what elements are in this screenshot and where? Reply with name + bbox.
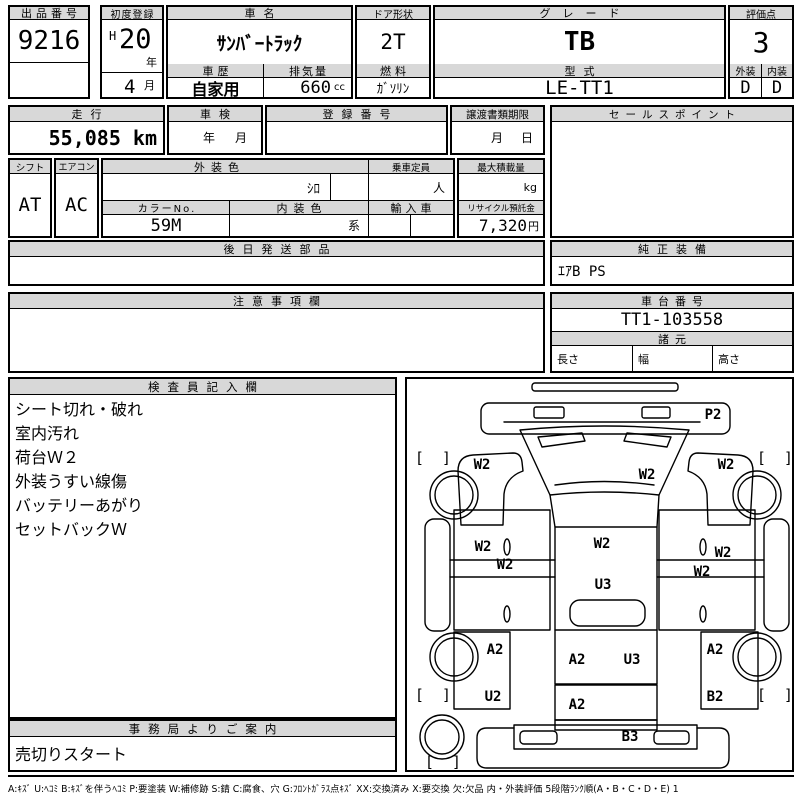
sales-point-box: セールスポイント (550, 105, 794, 238)
damage-mark: W2 (474, 457, 491, 473)
damage-mark: W2 (475, 539, 492, 555)
specs-label: 諸元 (552, 332, 792, 346)
fuel-label: 燃料 (357, 64, 429, 78)
fuel-value: ｶﾞｿﾘﾝ (357, 78, 429, 97)
first-reg-month: 4 (124, 76, 135, 98)
registration-no-label: 登録番号 (267, 107, 446, 122)
inspection-month-unit: 月 (235, 129, 247, 146)
recycle-fee-value: 7,320 (479, 216, 527, 235)
vehicle-diagram-box: [][][][][] P2W2W2W2W2W2W2W2W2U3A2A2U3A2U… (405, 377, 794, 772)
oem-equipment-label: 純正装備 (552, 242, 792, 257)
damage-mark: B2 (707, 689, 724, 705)
recycle-fee-unit: 円 (528, 218, 539, 234)
first-reg-year-cell: H 20 年 (102, 20, 162, 72)
auction-no-box: 出品番号 9216 (8, 5, 90, 99)
damage-marks: P2W2W2W2W2W2W2W2W2U3A2A2U3A2U2A2B2B3 (474, 407, 735, 745)
first-reg-label: 初度登録 (102, 7, 162, 20)
door-shape-box: ドア形状 2T 燃料 ｶﾞｿﾘﾝ (355, 5, 431, 99)
max-load-unit: kg (524, 181, 537, 194)
history-value: 自家用 (168, 78, 263, 97)
interior-color-label: 内装色 (229, 201, 368, 215)
transfer-docs-box: 譲渡書類期限 月 日 (450, 105, 545, 155)
transfer-docs-label: 譲渡書類期限 (452, 107, 543, 122)
first-registration-box: 初度登録 H 20 年 4 月 (100, 5, 164, 99)
recycle-fee-label: リサイクル預託金 (459, 201, 543, 215)
inspector-notes-list: シート切れ・破れ 室内汚れ 荷台Ｗ２ 外装うすい線傷 バッテリーあがり セットバ… (15, 398, 393, 715)
aircon-value: AC (56, 174, 97, 236)
caution-box: 注意事項欄 (8, 292, 545, 373)
corner-bracket: ] (785, 449, 791, 467)
grade-box: グレード TB 型式 LE-TT1 (433, 5, 726, 99)
aircon-box: エアコン AC (54, 158, 99, 238)
caution-empty (10, 309, 543, 371)
sales-point-label: セールスポイント (552, 107, 792, 122)
vehicle-diagram: [][][][][] P2W2W2W2W2W2W2W2W2U3A2A2U3A2U… (407, 379, 792, 770)
inspector-notes-label: 検査員記入欄 (10, 379, 395, 395)
chassis-no-value: TT1-103558 (552, 309, 792, 332)
office-notice-box: 事務局よりご案内 売切りスタート (8, 719, 397, 772)
inspection-year-unit: 年 (203, 129, 215, 146)
import-cell-2 (410, 215, 453, 236)
car-name-value: ｻﾝﾊﾞｰﾄﾗｯｸ (168, 20, 351, 64)
later-parts-label: 後日発送部品 (10, 242, 543, 257)
door-shape-label: ドア形状 (357, 7, 429, 20)
import-cell-1 (368, 215, 410, 236)
max-load-label: 最大積載量 (459, 160, 543, 174)
model-code-value: LE-TT1 (435, 78, 724, 97)
truck-outline (420, 383, 789, 768)
mileage-label: 走行 (10, 107, 163, 122)
transfer-day-unit: 日 (521, 129, 533, 146)
shift-value: AT (10, 174, 50, 236)
corner-bracket: [ (427, 753, 433, 770)
sales-point-empty (552, 122, 792, 236)
damage-mark: W2 (694, 564, 711, 580)
mileage-box: 走行 55,085 km (8, 105, 165, 155)
color-no-label: カラーNo. (103, 201, 229, 215)
inspector-note: セットバックＷ (15, 518, 393, 542)
oem-equipment-value: ｴｱB PS (552, 257, 792, 284)
damage-mark: B3 (622, 729, 639, 745)
auction-no-label: 出品番号 (10, 7, 88, 20)
corner-bracket: ] (785, 686, 791, 704)
damage-mark: U3 (595, 577, 612, 593)
recycle-fee-cell: 7,320 円 (459, 215, 543, 236)
displacement-unit: cc (334, 82, 345, 93)
transfer-month-unit: 月 (491, 129, 503, 146)
damage-mark: W2 (497, 557, 514, 573)
damage-mark: A2 (707, 642, 724, 658)
grade-label: グレード (435, 7, 724, 20)
caution-label: 注意事項欄 (10, 294, 543, 309)
damage-mark: W2 (715, 545, 732, 561)
legend-text: A:ｷｽﾞ U:ﾍｺﾐ B:ｷｽﾞを伴うﾍｺﾐ P:要塗装 W:補修跡 S:錆 … (8, 775, 794, 798)
spec-length-label: 長さ (552, 346, 632, 371)
interior-grade-label: 内装 (761, 64, 792, 78)
color-capacity-box: 外装色 乗車定員 ｼﾛ 人 カラーNo. 内装色 輸入車 59M 系 (101, 158, 455, 238)
inspection-box: 車検 年 月 (167, 105, 263, 155)
damage-mark: W2 (639, 467, 656, 483)
exterior-grade-value: D (730, 78, 761, 97)
capacity-unit: 人 (433, 179, 445, 196)
spec-height-label: 高さ (712, 346, 792, 371)
corner-bracket: [ (417, 449, 423, 467)
registration-no-empty (267, 122, 446, 153)
shift-label: シフト (10, 160, 50, 174)
corner-bracket: ] (453, 753, 459, 770)
max-load-box: 最大積載量 kg リサイクル預託金 7,320 円 (457, 158, 545, 238)
corner-bracket: [ (759, 449, 765, 467)
car-name-label: 車名 (168, 7, 351, 20)
first-reg-month-cell: 4 月 (102, 72, 162, 97)
damage-mark: P2 (705, 407, 722, 423)
damage-mark: U2 (485, 689, 502, 705)
transfer-docs-value-cell: 月 日 (452, 122, 543, 153)
capacity-label: 乗車定員 (368, 160, 453, 174)
import-label: 輸入車 (368, 201, 453, 215)
score-label: 評価点 (730, 7, 792, 20)
score-value: 3 (730, 20, 792, 64)
first-reg-year-unit: 年 (146, 54, 157, 70)
mileage-value: 55,085 km (10, 122, 163, 153)
inspector-note: シート切れ・破れ (15, 398, 393, 422)
auction-no-empty-cell (10, 62, 88, 97)
oem-equipment-box: 純正装備 ｴｱB PS (550, 240, 794, 286)
later-parts-box: 後日発送部品 (8, 240, 545, 286)
interior-grade-value: D (761, 78, 792, 97)
damage-mark: W2 (594, 536, 611, 552)
inspector-note: 外装うすい線傷 (15, 470, 393, 494)
damage-mark: A2 (487, 642, 504, 658)
displacement-label: 排気量 (263, 64, 351, 78)
displacement-value: 660 (300, 78, 331, 98)
first-reg-year: 20 (119, 24, 152, 55)
shift-box: シフト AT (8, 158, 52, 238)
score-box: 評価点 3 外装 内装 D D (728, 5, 794, 99)
interior-color-cell: 系 (229, 215, 368, 236)
grade-value: TB (435, 20, 724, 64)
exterior-color-label: 外装色 (103, 160, 330, 174)
car-name-box: 車名 ｻﾝﾊﾞｰﾄﾗｯｸ 車歴 排気量 自家用 660 cc (166, 5, 353, 99)
corner-bracket: ] (443, 686, 449, 704)
damage-mark: A2 (569, 652, 586, 668)
corner-bracket: ] (443, 449, 449, 467)
damage-mark: U3 (624, 652, 641, 668)
capacity-value-cell: 人 (368, 174, 453, 201)
auction-no-value: 9216 (10, 20, 88, 62)
aircon-label: エアコン (56, 160, 97, 174)
damage-mark: W2 (718, 457, 735, 473)
exterior-color-sub-cell (330, 174, 368, 201)
spec-width-label: 幅 (632, 346, 712, 371)
first-reg-era: H (109, 29, 116, 43)
chassis-label: 車台番号 (552, 294, 792, 309)
inspector-notes-box: 検査員記入欄 シート切れ・破れ 室内汚れ 荷台Ｗ２ 外装うすい線傷 バッテリーあ… (8, 377, 397, 719)
interior-color-unit: 系 (348, 217, 360, 234)
later-parts-empty (10, 257, 543, 284)
exterior-grade-label: 外装 (730, 64, 761, 78)
corner-bracket: [ (417, 686, 423, 704)
office-notice-value: 売切りスタート (15, 737, 393, 770)
max-load-value-cell: kg (459, 174, 543, 201)
door-shape-value: 2T (357, 20, 429, 64)
displacement-cell: 660 cc (263, 78, 351, 97)
office-notice-label: 事務局よりご案内 (10, 721, 395, 737)
registration-no-box: 登録番号 (265, 105, 448, 155)
chassis-box: 車台番号 TT1-103558 諸元 長さ 幅 高さ (550, 292, 794, 373)
damage-mark: A2 (569, 697, 586, 713)
exterior-color-value: ｼﾛ (103, 174, 330, 201)
first-reg-month-unit: 月 (144, 77, 155, 93)
inspector-note: バッテリーあがり (15, 494, 393, 518)
inspection-label: 車検 (169, 107, 261, 122)
corner-bracket: [ (759, 686, 765, 704)
color-no-value: 59M (103, 215, 229, 236)
inspector-note: 荷台Ｗ２ (15, 446, 393, 470)
auction-sheet: 出品番号 9216 初度登録 H 20 年 4 月 車名 ｻﾝﾊﾞｰﾄﾗｯｸ 車… (0, 0, 800, 800)
inspector-note: 室内汚れ (15, 422, 393, 446)
inspection-value-cell: 年 月 (169, 122, 261, 153)
exterior-color-header-cell: 外装色 (103, 160, 368, 174)
